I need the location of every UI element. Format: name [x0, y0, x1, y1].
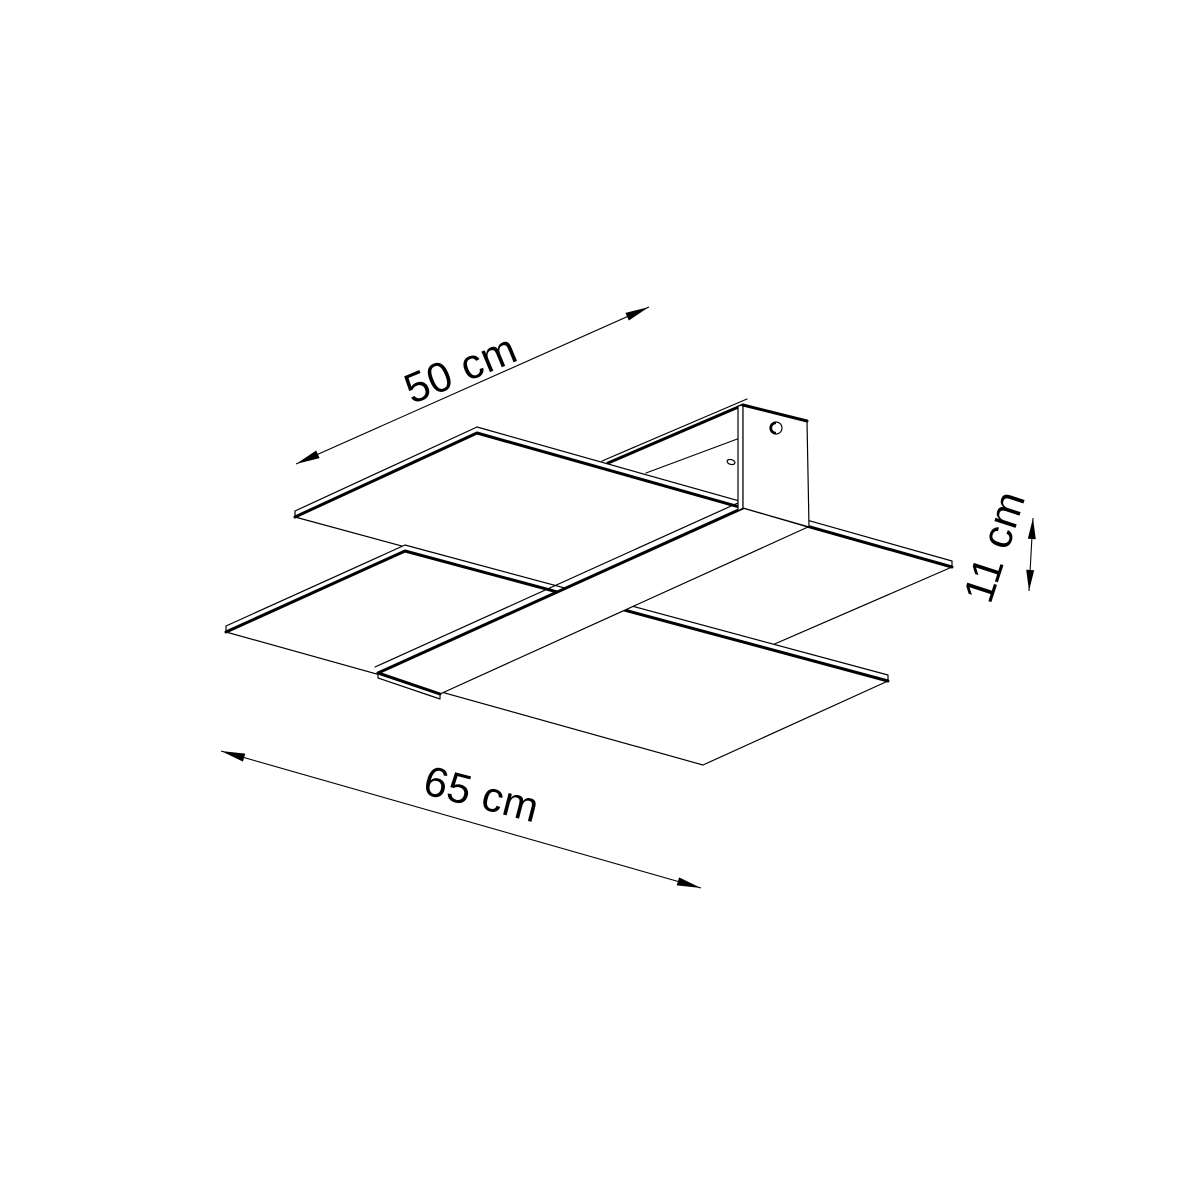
dim-50cm-label: 50 cm: [397, 325, 523, 413]
ceiling-mount-plate: [738, 405, 809, 527]
dim-50cm-arrowhead-left: [296, 451, 320, 465]
dim-65cm-label: 65 cm: [419, 757, 544, 832]
rail-wire-hole: [727, 459, 736, 466]
dim-65cm-arrowhead-right: [677, 877, 701, 888]
rail-top-edge: [608, 405, 743, 463]
dim-width-65cm: 65 cm: [221, 751, 701, 888]
rail-top-outer-edge: [602, 399, 747, 461]
lamp-dimension-diagram: 50 cm 65 cm 11 cm: [0, 0, 1200, 1200]
dim-height-11cm: 11 cm: [954, 485, 1036, 608]
dim-65cm-arrowhead-left: [221, 751, 245, 762]
rail-inner-edge: [646, 438, 740, 473]
dim-50cm-arrowhead-right: [625, 307, 649, 321]
ceiling-mount-rail: [602, 399, 747, 473]
dim-11cm-label: 11 cm: [954, 485, 1034, 608]
dim-11cm-arrowhead-top: [1028, 518, 1036, 539]
lamp-diagram-svg: 50 cm 65 cm 11 cm: [0, 0, 1200, 1200]
plate-side-face: [738, 405, 743, 511]
dim-11cm-arrowhead-bottom: [1026, 570, 1034, 591]
